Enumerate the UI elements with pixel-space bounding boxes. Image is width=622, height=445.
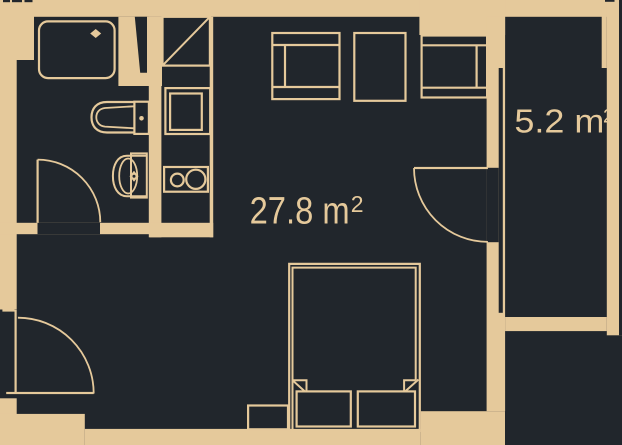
svg-text:5.2 m: 5.2 m <box>514 104 604 141</box>
svg-text:2: 2 <box>351 191 364 217</box>
svg-text:27.8 m: 27.8 m <box>250 190 350 232</box>
